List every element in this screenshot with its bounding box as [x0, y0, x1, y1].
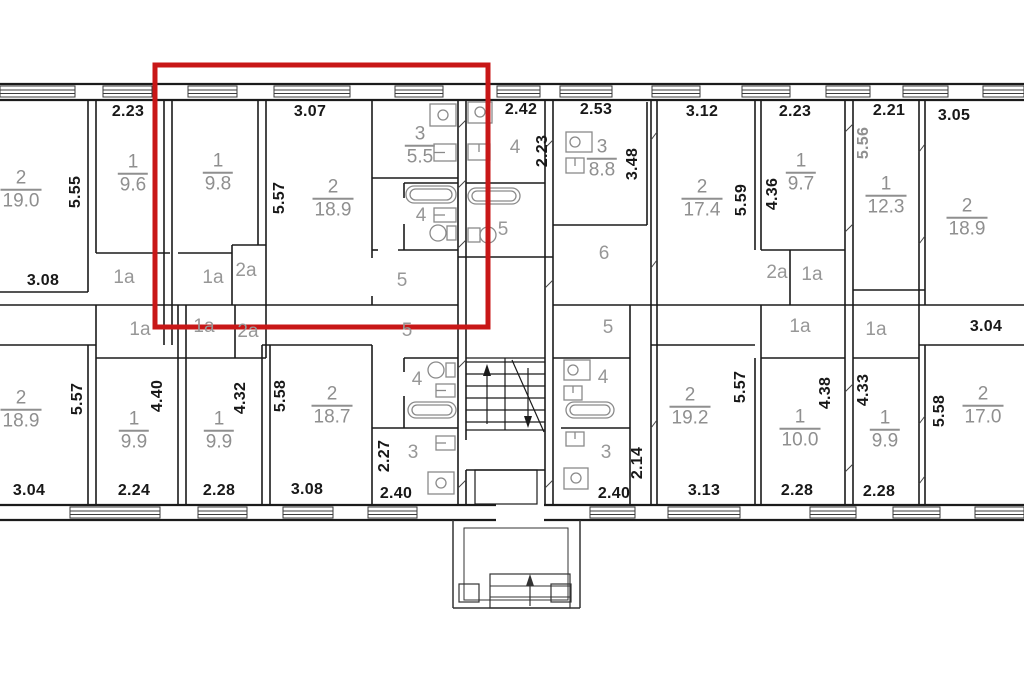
staircase — [466, 358, 545, 504]
bathtub-icon — [468, 188, 520, 204]
stairs-up-arrow-icon — [483, 364, 491, 424]
stove-icon — [428, 472, 454, 494]
stove-icon — [566, 158, 584, 173]
sink-icon — [434, 208, 456, 222]
toilet-icon — [468, 227, 496, 243]
sink-icon — [566, 132, 592, 152]
sink-icon — [566, 432, 584, 446]
sink-icon — [564, 386, 582, 400]
entrance-porch — [453, 520, 580, 608]
bathtub-icon — [566, 402, 614, 418]
boundary-hatching — [458, 120, 925, 488]
entrance-steps-icon — [490, 574, 570, 608]
floor-plan: 2.233.072.422.533.122.232.213.053.083.04… — [0, 0, 1024, 692]
fixtures — [406, 102, 614, 494]
sink-icon — [434, 144, 456, 161]
bathtub-icon — [406, 186, 456, 203]
stove-icon — [430, 104, 456, 126]
toilet-icon — [430, 225, 456, 241]
toilet-icon — [428, 362, 455, 378]
stove-icon — [564, 468, 588, 489]
window-glyphs-bottom — [70, 507, 1024, 518]
bathtub-icon — [408, 402, 456, 418]
plan-drawing — [0, 0, 1024, 692]
sink-icon — [436, 436, 455, 450]
sink-icon — [436, 384, 455, 397]
sink-icon — [564, 360, 590, 380]
